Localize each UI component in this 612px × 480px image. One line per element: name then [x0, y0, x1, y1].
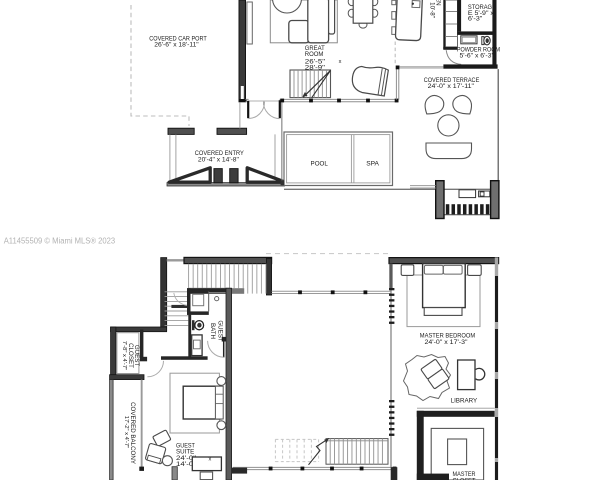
- svg-text:17'-2" x 4'-7": 17'-2" x 4'-7": [123, 416, 129, 448]
- svg-text:24'-0" x 17'-11": 24'-0" x 17'-11": [428, 83, 474, 90]
- svg-text:6'-3": 6'-3": [468, 16, 483, 23]
- svg-text:SPA: SPA: [366, 160, 380, 167]
- svg-text:26'-6" x 18'-11": 26'-6" x 18'-11": [154, 42, 198, 49]
- svg-text:GUEST: GUEST: [216, 320, 223, 342]
- svg-text:COVERED BALCONY: COVERED BALCONY: [129, 402, 136, 464]
- svg-text:LIBRARY: LIBRARY: [451, 397, 478, 404]
- svg-text:ROOM: ROOM: [305, 51, 324, 58]
- svg-text:A11455509 © Miami MLS® 2023: A11455509 © Miami MLS® 2023: [4, 237, 116, 246]
- svg-text:24'-0" x 17'-3": 24'-0" x 17'-3": [425, 339, 468, 346]
- svg-text:10'-8": 10'-8": [428, 2, 435, 18]
- svg-text:5'-6" x 6'-3": 5'-6" x 6'-3": [460, 53, 494, 60]
- svg-text:x: x: [339, 59, 342, 65]
- svg-text:7'-8" x 4'-7": 7'-8" x 4'-7": [121, 341, 127, 370]
- svg-text:x: x: [209, 456, 212, 462]
- svg-text:POOL: POOL: [311, 160, 329, 167]
- svg-text:BATH: BATH: [209, 323, 216, 339]
- svg-text:20'-4" x 14'-8": 20'-4" x 14'-8": [198, 156, 239, 163]
